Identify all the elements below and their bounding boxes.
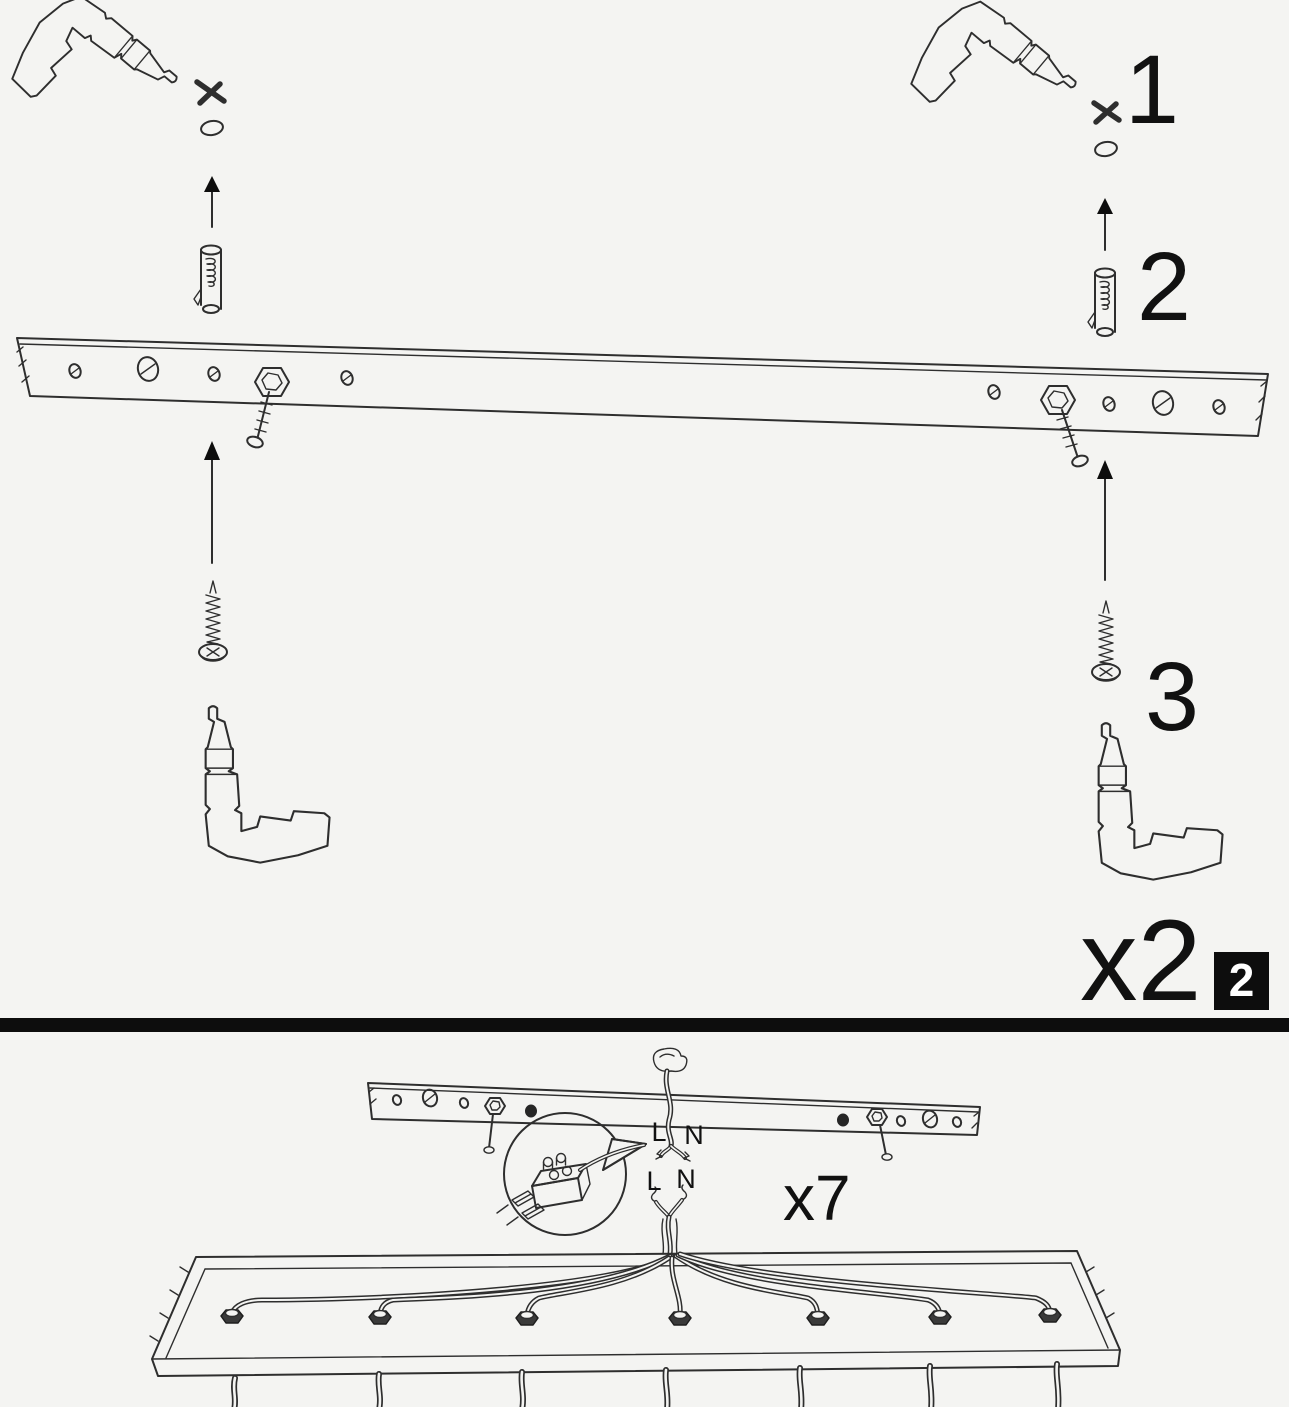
- up-arrow-icon-right-long: [1097, 460, 1113, 580]
- hex-bolt-icon-right: [1041, 386, 1089, 468]
- up-arrow-icon-left-short: [204, 176, 220, 227]
- panel-step-2: 1 2 3: [0, 0, 1269, 1025]
- wall-plug-icon-left: [194, 246, 221, 314]
- wire-label-neutral-top: N: [684, 1120, 704, 1150]
- panel-number-text: 2: [1229, 954, 1255, 1006]
- up-arrow-icon-left-long: [204, 441, 220, 563]
- drill-icon-top-right: [898, 0, 1078, 167]
- panel-divider: [0, 1018, 1289, 1032]
- instruction-sheet: 1 2 3: [0, 0, 1289, 1407]
- step-1-number: 1: [1125, 35, 1179, 144]
- wire-label-live-top: L: [651, 1117, 666, 1147]
- wall-plug-icon-right: [1088, 269, 1115, 337]
- repeat-x2-label: x2: [1080, 897, 1201, 1025]
- magnifier-callout-icon: [497, 1113, 646, 1235]
- cable-gland-icons: [221, 1309, 1061, 1326]
- mounting-bar-icon: [17, 338, 1268, 468]
- drilled-hole-icon-left: [200, 119, 224, 137]
- drill-icon-bottom-left: [206, 706, 330, 862]
- drill-point-x-icon-left: [197, 82, 224, 103]
- screw-icon-right: [1092, 601, 1120, 681]
- drill-icon-top-left: [0, 0, 180, 162]
- assembly-diagram: 1 2 3: [0, 0, 1289, 1407]
- mounted-bolt-left: [484, 1098, 505, 1153]
- canopy-icon: [150, 1251, 1120, 1407]
- screw-icon-left: [199, 581, 227, 661]
- repeat-x7-label: x7: [783, 1162, 851, 1234]
- wire-label-live-bottom: L: [646, 1166, 661, 1196]
- wire-label-neutral-bottom: N: [676, 1164, 696, 1194]
- bar-holes-right: [986, 384, 1226, 418]
- bar-holes-left: [67, 355, 354, 387]
- step-3-number: 3: [1145, 642, 1199, 751]
- drilled-hole-icon-right: [1094, 140, 1118, 158]
- step-2-number: 2: [1137, 232, 1191, 341]
- panel-wiring: L N L N: [150, 1048, 1120, 1407]
- canopy-wires: [232, 1254, 1050, 1315]
- mounted-bolt-right: [867, 1109, 892, 1160]
- hex-bolt-icon-left: [246, 368, 289, 449]
- drill-point-x-icon-right: [1094, 103, 1119, 122]
- up-arrow-icon-right-short: [1097, 198, 1113, 250]
